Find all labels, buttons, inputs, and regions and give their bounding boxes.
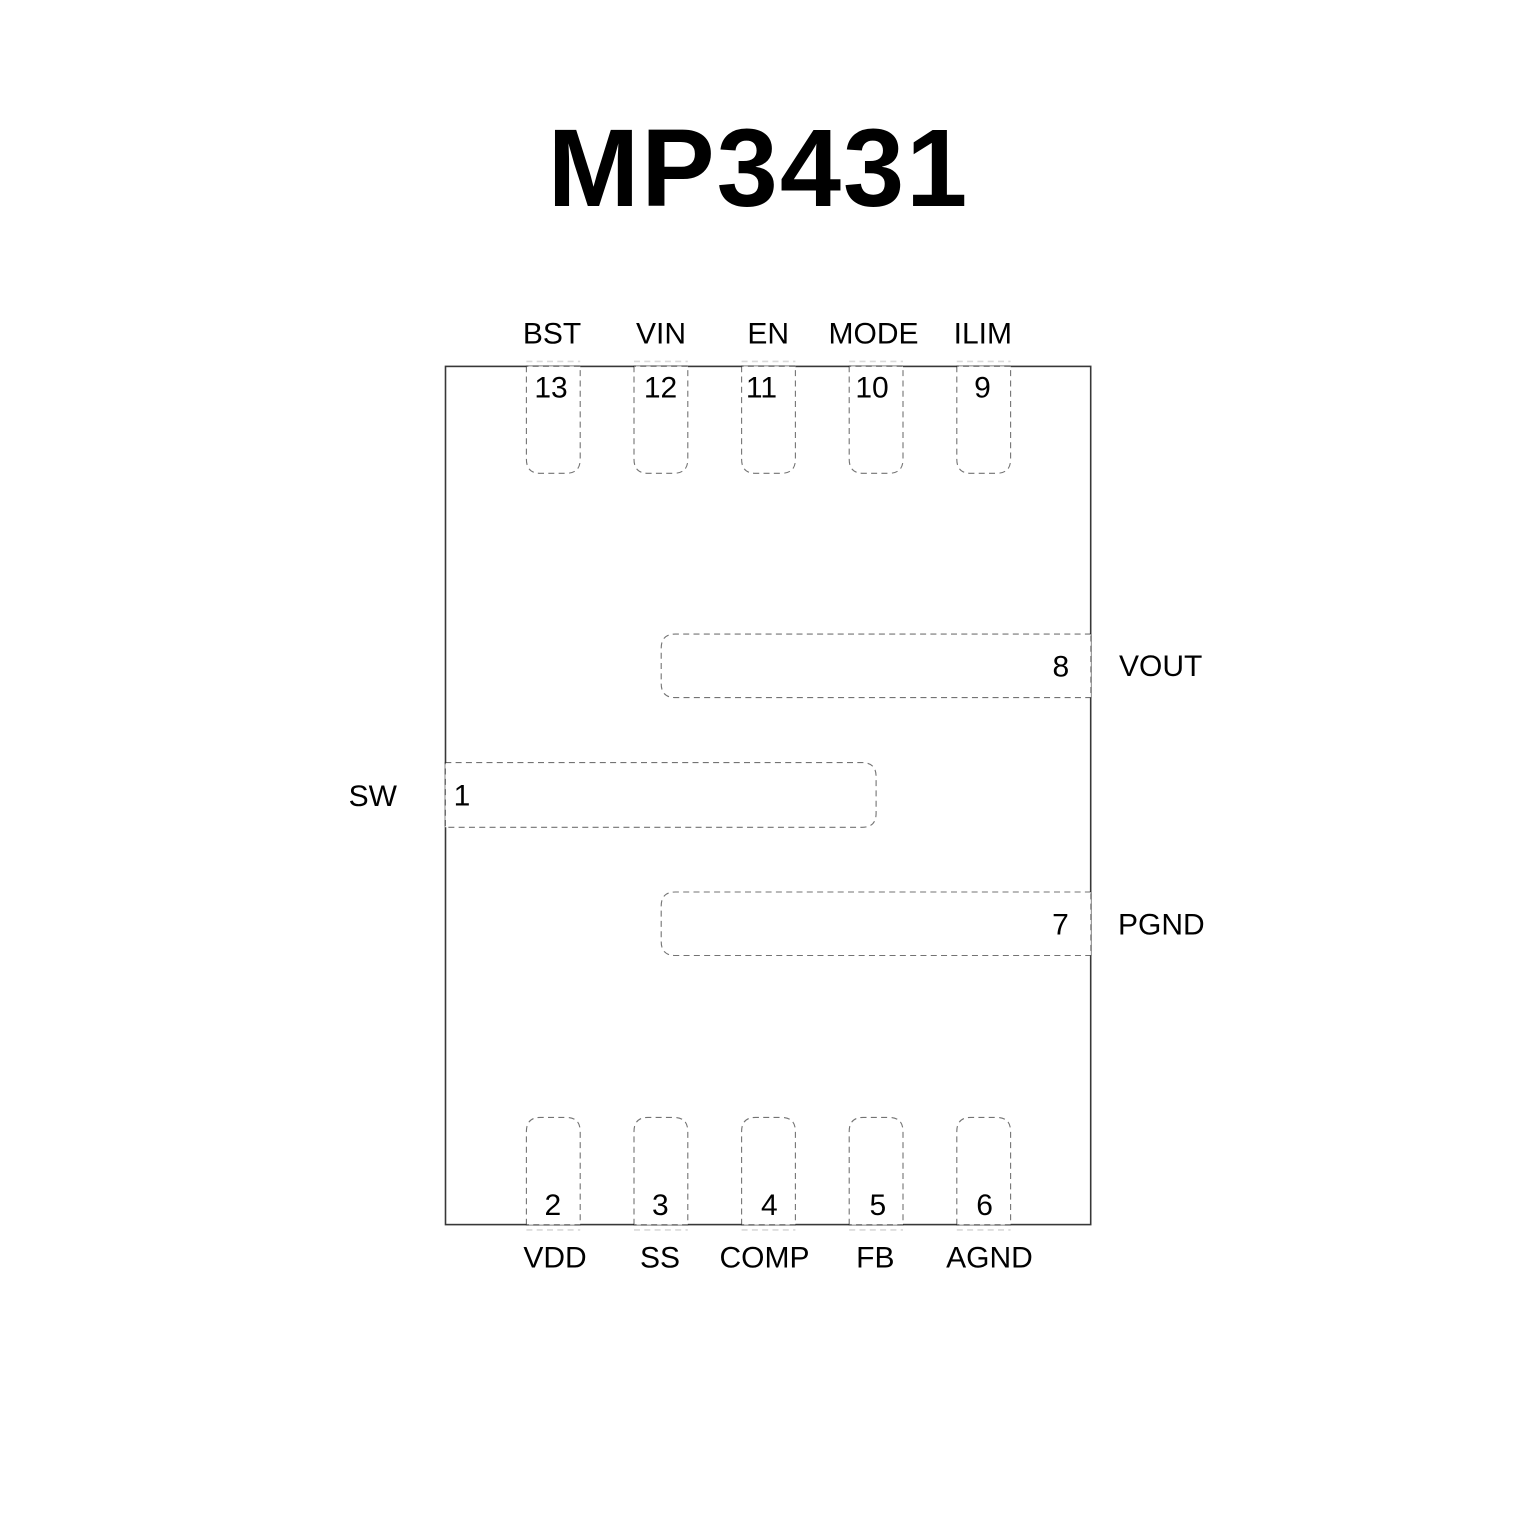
- svg-text:12: 12: [644, 372, 677, 405]
- svg-text:ILIM: ILIM: [954, 318, 1012, 351]
- svg-text:8: 8: [1053, 650, 1070, 683]
- svg-text:EN: EN: [747, 318, 789, 351]
- svg-text:MP3431: MP3431: [548, 107, 970, 230]
- svg-text:VIN: VIN: [636, 318, 686, 351]
- svg-text:13: 13: [534, 372, 567, 405]
- svg-text:11: 11: [746, 372, 777, 405]
- svg-text:VOUT: VOUT: [1119, 650, 1202, 683]
- svg-text:COMP: COMP: [720, 1242, 810, 1275]
- svg-text:7: 7: [1052, 908, 1069, 941]
- svg-text:5: 5: [869, 1189, 886, 1222]
- svg-text:AGND: AGND: [946, 1242, 1033, 1275]
- svg-text:1: 1: [454, 780, 471, 813]
- svg-text:SW: SW: [349, 780, 398, 813]
- svg-text:FB: FB: [856, 1242, 894, 1275]
- svg-text:3: 3: [652, 1189, 669, 1222]
- svg-text:9: 9: [974, 372, 991, 405]
- svg-text:10: 10: [855, 372, 888, 405]
- svg-text:SS: SS: [640, 1242, 680, 1275]
- svg-text:VDD: VDD: [523, 1242, 586, 1275]
- svg-text:2: 2: [544, 1189, 561, 1222]
- svg-text:4: 4: [761, 1189, 778, 1222]
- svg-text:MODE: MODE: [829, 318, 919, 351]
- svg-text:PGND: PGND: [1118, 909, 1205, 942]
- svg-text:6: 6: [976, 1189, 993, 1222]
- svg-text:BST: BST: [523, 318, 581, 351]
